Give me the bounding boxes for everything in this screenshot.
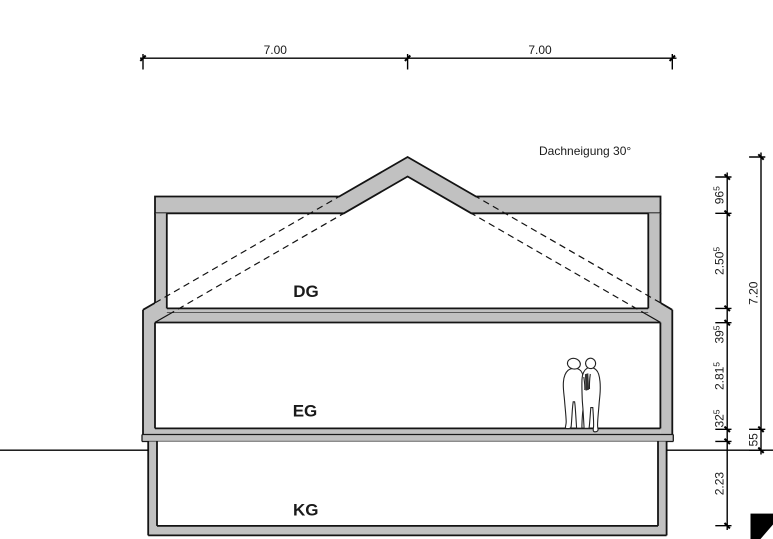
svg-text:EG: EG [293,401,318,420]
svg-text:55: 55 [747,433,761,447]
svg-text:7.20: 7.20 [747,281,761,305]
svg-text:DG: DG [293,282,319,301]
svg-text:2.23: 2.23 [713,472,727,496]
svg-text:Dachneigung 30°: Dachneigung 30° [539,144,631,158]
svg-text:7.00: 7.00 [528,43,552,57]
svg-text:KG: KG [293,501,319,520]
svg-text:7.00: 7.00 [264,43,288,57]
